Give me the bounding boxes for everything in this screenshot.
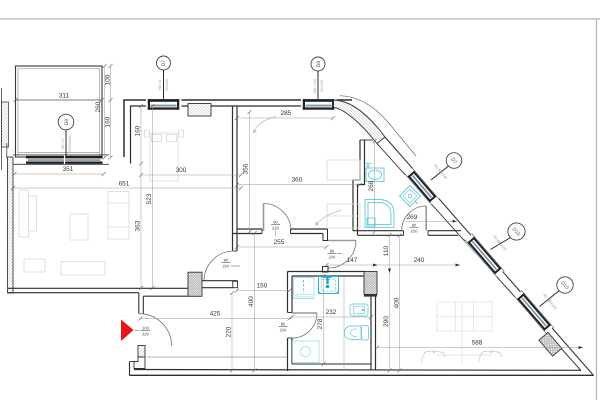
svg-text:232: 232 <box>326 309 337 316</box>
svg-text:220: 220 <box>142 331 149 336</box>
svg-text:80: 80 <box>281 322 286 327</box>
svg-text:220: 220 <box>280 327 287 332</box>
svg-text:D8: D8 <box>316 61 322 68</box>
svg-text:290: 290 <box>383 316 390 327</box>
svg-text:240: 240 <box>414 257 425 264</box>
svg-text:220: 220 <box>272 225 279 230</box>
svg-text:351: 351 <box>63 166 74 173</box>
svg-text:HD = 0: HD = 0 <box>61 138 65 149</box>
svg-text:147: 147 <box>347 257 358 264</box>
svg-text:260: 260 <box>95 101 102 112</box>
svg-text:268: 268 <box>368 180 375 191</box>
svg-text:651: 651 <box>119 181 130 188</box>
svg-text:285: 285 <box>281 110 292 117</box>
svg-text:D9: D9 <box>64 119 70 126</box>
svg-text:300: 300 <box>176 167 187 174</box>
svg-text:363: 363 <box>135 220 142 231</box>
svg-text:523: 523 <box>146 193 153 204</box>
svg-text:100: 100 <box>105 74 112 85</box>
svg-text:90X120: 90X120 <box>320 80 324 92</box>
svg-text:160: 160 <box>105 116 112 127</box>
svg-text:269: 269 <box>407 214 418 221</box>
svg-text:D7: D7 <box>161 60 167 67</box>
svg-text:90: 90 <box>273 220 278 225</box>
svg-text:400: 400 <box>394 297 401 308</box>
svg-text:220: 220 <box>329 254 336 259</box>
svg-text:425: 425 <box>210 311 221 318</box>
svg-text:360: 360 <box>292 177 303 184</box>
svg-text:356: 356 <box>243 163 250 174</box>
svg-text:90X240: 90X240 <box>165 79 169 91</box>
svg-text:220(90)240: 220(90)240 <box>68 135 72 153</box>
svg-text:220: 220 <box>226 326 233 337</box>
svg-text:90: 90 <box>224 258 229 263</box>
svg-text:311: 311 <box>59 93 70 100</box>
svg-text:400: 400 <box>248 296 255 307</box>
svg-text:160: 160 <box>135 125 142 136</box>
svg-text:588: 588 <box>472 340 483 347</box>
svg-text:80: 80 <box>412 223 417 228</box>
svg-text:220: 220 <box>411 228 418 233</box>
svg-text:HD =0: HD =0 <box>158 80 162 90</box>
svg-text:90: 90 <box>330 249 335 254</box>
svg-text:110: 110 <box>383 245 390 256</box>
svg-text:220: 220 <box>223 263 230 268</box>
svg-text:278: 278 <box>317 318 324 329</box>
svg-text:255: 255 <box>274 239 285 246</box>
svg-text:100: 100 <box>142 326 149 331</box>
svg-text:HD =120: HD =120 <box>313 79 317 93</box>
svg-text:150: 150 <box>257 283 268 290</box>
